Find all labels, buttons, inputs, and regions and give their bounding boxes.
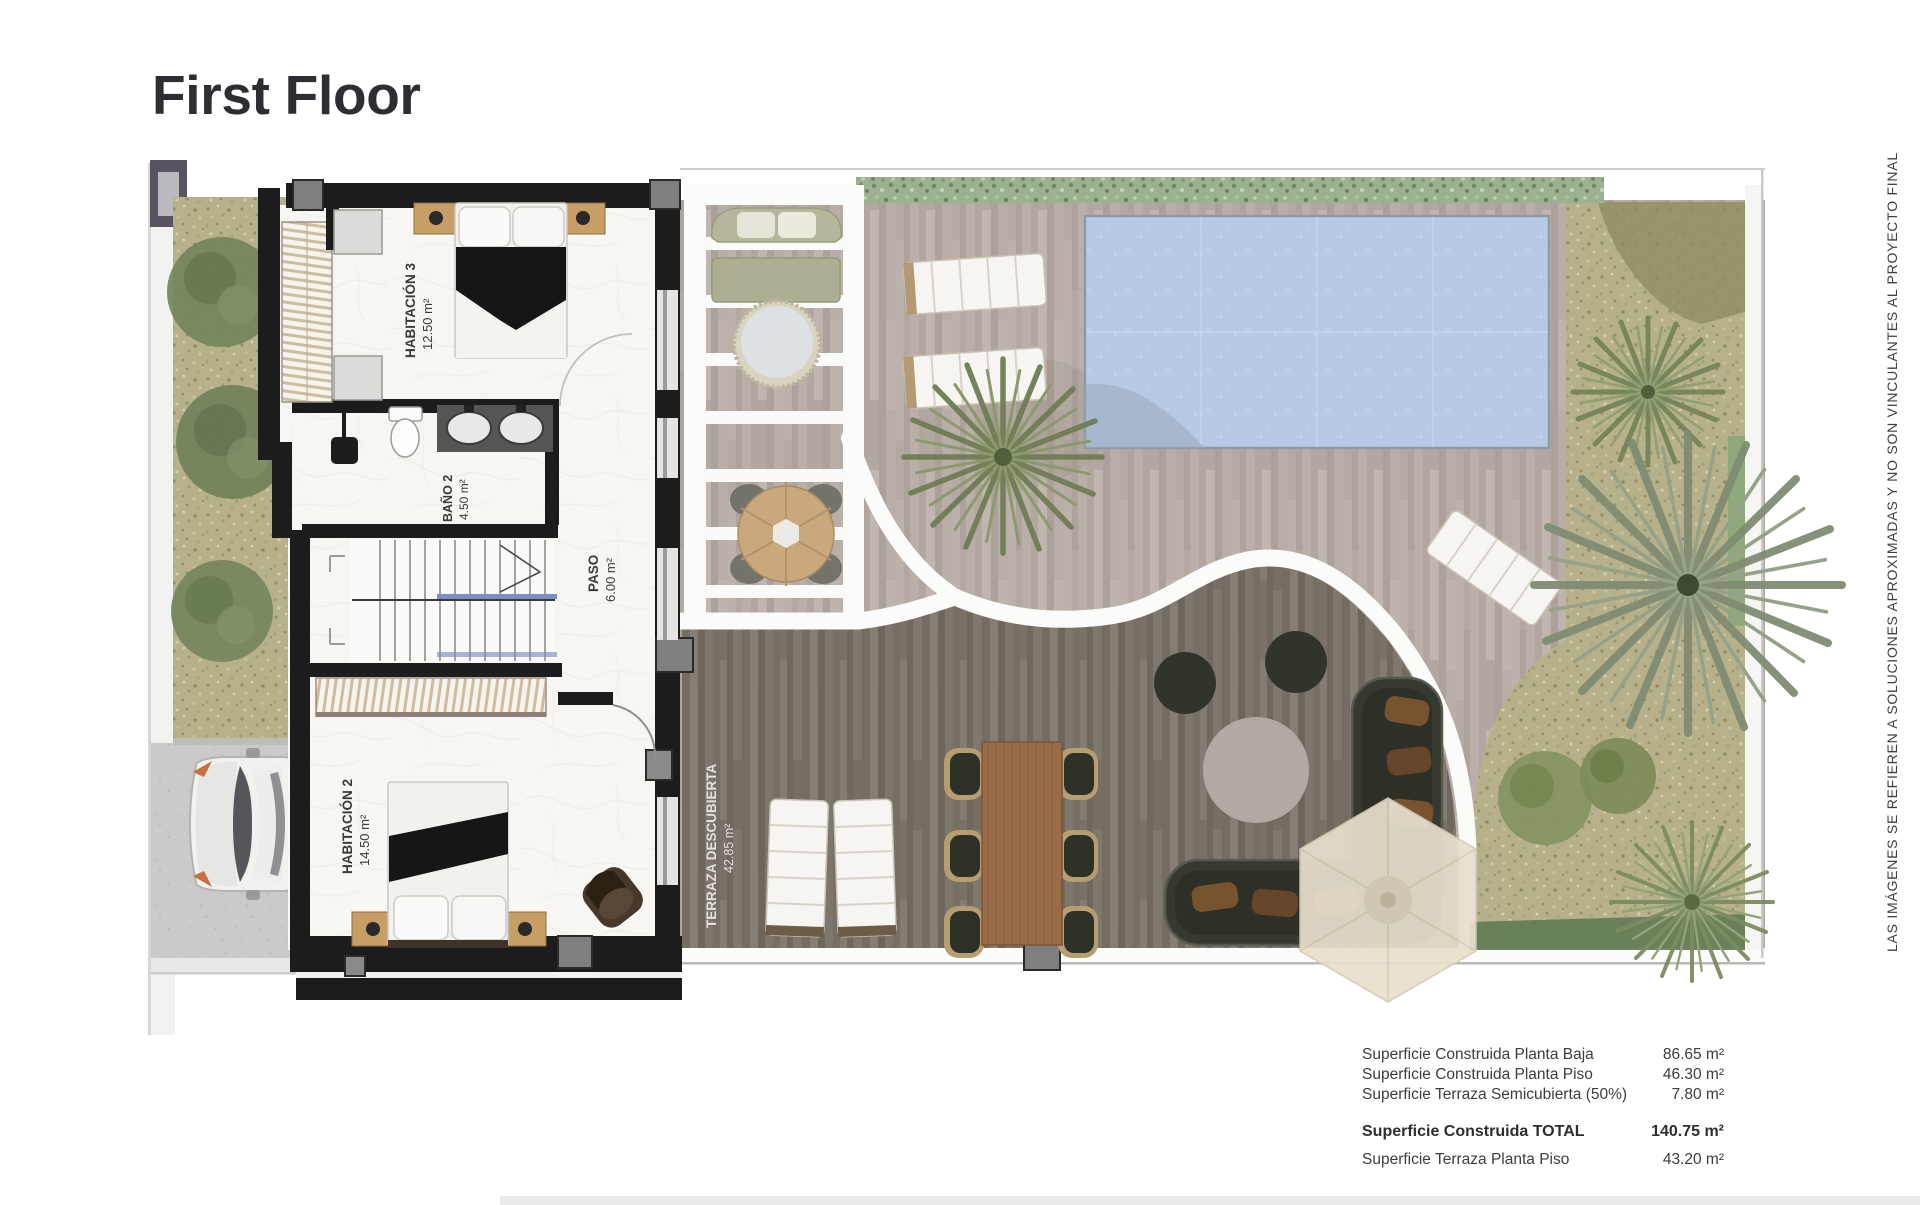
svg-text:First Floor: First Floor: [152, 64, 421, 126]
svg-text:HABITACIÓN 2: HABITACIÓN 2: [340, 779, 355, 874]
svg-text:4.50 m²: 4.50 m²: [457, 479, 471, 520]
svg-text:LAS IMÁGENES SE REFIEREN A SOL: LAS IMÁGENES SE REFIEREN A SOLUCIONES AP…: [1884, 152, 1900, 952]
svg-text:12.50 m²: 12.50 m²: [420, 298, 435, 350]
svg-text:BAÑO 2: BAÑO 2: [440, 475, 455, 522]
svg-text:86.65 m²: 86.65 m²: [1663, 1046, 1724, 1063]
svg-text:46.30 m²: 46.30 m²: [1663, 1066, 1724, 1083]
svg-text:Superficie Construida Planta P: Superficie Construida Planta Piso: [1362, 1066, 1593, 1083]
svg-text:TERRAZA DESCUBIERTA: TERRAZA DESCUBIERTA: [704, 764, 719, 928]
svg-text:Superficie Terraza Planta Piso: Superficie Terraza Planta Piso: [1362, 1151, 1569, 1168]
svg-text:140.75 m²: 140.75 m²: [1651, 1123, 1724, 1140]
svg-text:PASO: PASO: [586, 555, 601, 592]
svg-text:43.20 m²: 43.20 m²: [1663, 1151, 1724, 1168]
svg-text:Superficie Terraza Semicubiert: Superficie Terraza Semicubierta (50%): [1362, 1086, 1627, 1103]
svg-text:7.80 m²: 7.80 m²: [1671, 1086, 1724, 1103]
svg-text:HABITACIÓN 3: HABITACIÓN 3: [403, 263, 418, 358]
svg-text:Superficie Construida TOTAL: Superficie Construida TOTAL: [1362, 1123, 1585, 1140]
svg-text:14.50 m²: 14.50 m²: [357, 814, 372, 866]
svg-text:Superficie Construida Planta B: Superficie Construida Planta Baja: [1362, 1046, 1594, 1063]
svg-text:42.85 m²: 42.85 m²: [722, 824, 736, 873]
svg-text:6.00 m²: 6.00 m²: [603, 557, 618, 602]
